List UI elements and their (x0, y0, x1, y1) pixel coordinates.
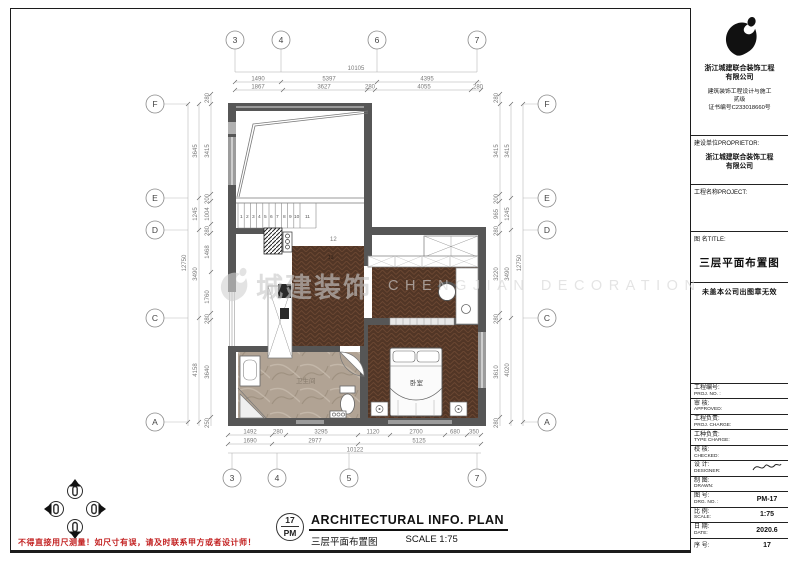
row-drg-no: 图 号:DRG. NO. : PM-17 (691, 492, 788, 507)
svg-text:1490: 1490 (251, 77, 265, 83)
drawing-title-footer: 17 PM ARCHITECTURAL INFO. PLAN 三层平面布置图 S… (276, 513, 508, 548)
seal-note: 未盖本公司出图章无效 (691, 287, 788, 297)
proprietor-section: 建设单位PROPRIETOR: 浙江城建联合装饰工程 有限公司 (691, 136, 788, 185)
svg-text:4: 4 (279, 35, 284, 45)
interior-window-band (390, 318, 454, 325)
svg-text:1120: 1120 (367, 430, 381, 436)
footer-title-en: ARCHITECTURAL INFO. PLAN (309, 513, 508, 531)
nightstand-left (371, 402, 388, 416)
cert-line2: 贰级 (708, 96, 772, 104)
row-date: 日 期:DATE: 2020.6 (691, 523, 788, 538)
svg-text:12750: 12750 (182, 254, 188, 271)
stair-number: 10 (294, 214, 300, 220)
seal-section: 未盖本公司出图章无效 (691, 283, 788, 384)
svg-text:4020: 4020 (505, 363, 511, 377)
svg-text:A: A (544, 417, 550, 427)
svg-text:3645: 3645 (193, 144, 199, 158)
wall-unit (280, 308, 289, 319)
top-dimensions: 10105 1490 5397 4395 1867 3627 280 4055 … (251, 66, 483, 91)
svg-text:C: C (152, 313, 158, 323)
svg-text:12750: 12750 (517, 254, 523, 271)
row-scale: 比 例:SCALE: 1:75 (691, 508, 788, 523)
cert-line3: 证书编号C233018660号 (708, 104, 772, 112)
svg-text:7: 7 (475, 35, 480, 45)
stair-number: 4 (258, 214, 261, 220)
shelf-band (368, 256, 478, 267)
svg-text:965: 965 (494, 208, 500, 219)
company-logo-section: 浙江城建联合装饰工程 有限公司 建筑装饰工程设计与施工 贰级 证书编号C2330… (691, 8, 788, 136)
svg-text:C: C (544, 313, 550, 323)
proprietor-value-line2: 有限公司 (691, 162, 788, 171)
office-chair (438, 282, 456, 300)
svg-text:4: 4 (275, 473, 280, 483)
svg-text:200: 200 (205, 193, 211, 204)
svg-text:1690: 1690 (243, 439, 257, 445)
company-logo-icon (720, 16, 760, 60)
stair-number: 1 (240, 214, 243, 220)
row-designer: 设 计:DESIGNER: (691, 461, 788, 476)
svg-text:280: 280 (205, 92, 211, 103)
svg-text:3415: 3415 (505, 144, 511, 158)
company-name-line1: 浙江城建联合装饰工程 (705, 64, 775, 73)
svg-text:1468: 1468 (205, 245, 211, 259)
landing-label: 12 (330, 237, 337, 243)
drawing-title-value: 三层平面布置图 (691, 255, 788, 270)
svg-text:3: 3 (233, 35, 238, 45)
measurement-warning-note: 不得直接用尺测量！如尺寸有误，请及时联系甲方或者设计师！ (18, 537, 256, 548)
desk (456, 268, 478, 324)
stair-number: 11 (305, 214, 310, 220)
right-dimensions: 280 3415 200 965 280 3220 280 3610 280 3… (494, 92, 523, 428)
drawing-sheet: 1 2 3 4 5 6 7 8 9 10 11 12 13 (0, 0, 800, 566)
svg-text:1004: 1004 (205, 207, 211, 221)
svg-text:A: A (152, 417, 158, 427)
svg-text:280: 280 (273, 430, 284, 436)
title-label: 图 名TITLE: (691, 232, 788, 243)
stair-number: 9 (289, 214, 292, 220)
floor-label: 13 (328, 255, 334, 261)
svg-text:3640: 3640 (205, 365, 211, 379)
sheet-number-bottom: PM (284, 527, 297, 539)
svg-text:10122: 10122 (347, 448, 364, 454)
stair-number: 2 (246, 214, 249, 220)
svg-text:5: 5 (347, 473, 352, 483)
title-block-rows: 工程编号:PROJ. NO. : 审 核:APPROVED: 工程负责:PROJ… (691, 384, 788, 553)
stool (462, 305, 471, 314)
svg-text:250: 250 (205, 417, 211, 428)
row-serial: 序 号: 17 (691, 539, 788, 553)
svg-text:280: 280 (494, 417, 500, 428)
sloped-ceiling-lines (236, 111, 368, 203)
left-dimensions: 12750 3645 1245 3490 4158 280 3415 200 1… (182, 92, 211, 428)
svg-text:F: F (544, 99, 549, 109)
svg-text:3295: 3295 (314, 430, 328, 436)
sheet-number-top: 17 (281, 514, 299, 527)
proprietor-label: 建设单位PROPRIETOR: (691, 136, 788, 147)
row-proj-charge: 工程负责:PROJ. CHARGE: (691, 415, 788, 430)
cert-line1: 建筑装饰工程设计与施工 (708, 88, 772, 96)
duct-shaft (264, 228, 282, 254)
title-block: 浙江城建联合装饰工程 有限公司 建筑装饰工程设计与施工 贰级 证书编号C2330… (690, 8, 788, 553)
bottom-dimensions: 1492 280 3295 1120 2700 680 350 1690 297… (243, 430, 479, 454)
svg-text:3490: 3490 (193, 267, 199, 281)
svg-text:280: 280 (494, 313, 500, 324)
svg-text:1760: 1760 (205, 290, 211, 304)
svg-text:4395: 4395 (420, 77, 434, 83)
footer-title-cn: 三层平面布置图 (311, 534, 378, 548)
svg-text:2700: 2700 (409, 430, 423, 436)
svg-text:E: E (152, 193, 158, 203)
north-arrow-ornament (44, 479, 106, 539)
project-label: 工程名称PROJECT: (691, 185, 788, 196)
svg-text:E: E (544, 193, 550, 203)
svg-text:1245: 1245 (193, 207, 199, 221)
svg-text:280: 280 (494, 92, 500, 103)
svg-text:3415: 3415 (205, 144, 211, 158)
proprietor-value-line1: 浙江城建联合装饰工程 (691, 153, 788, 162)
svg-text:280: 280 (494, 225, 500, 236)
row-checked: 校 核:CHECKED: (691, 446, 788, 461)
toilet (340, 386, 355, 414)
svg-text:280: 280 (205, 225, 211, 236)
company-name-line2: 有限公司 (705, 73, 775, 82)
floor-plan-canvas: 1 2 3 4 5 6 7 8 9 10 11 12 13 (0, 0, 690, 566)
meter-box (283, 232, 292, 252)
svg-text:280: 280 (365, 85, 376, 91)
staircase: 1 2 3 4 5 6 7 8 9 10 11 (238, 203, 316, 228)
svg-text:3610: 3610 (494, 365, 500, 379)
svg-text:D: D (544, 225, 550, 235)
wall-unit (278, 284, 291, 298)
svg-text:1867: 1867 (251, 85, 265, 91)
svg-text:4158: 4158 (193, 363, 199, 377)
stair-number: 3 (252, 214, 255, 220)
bedroom-label: 卧室 (410, 378, 424, 387)
svg-text:7: 7 (475, 473, 480, 483)
svg-text:200: 200 (494, 193, 500, 204)
svg-text:3220: 3220 (494, 267, 500, 281)
row-approved: 审 核:APPROVED: (691, 399, 788, 414)
svg-text:5125: 5125 (412, 439, 426, 445)
svg-text:350: 350 (469, 430, 480, 436)
svg-text:280: 280 (205, 313, 211, 324)
svg-text:2977: 2977 (308, 439, 322, 445)
closet-top (424, 236, 478, 257)
row-proj-no: 工程编号:PROJ. NO. : (691, 384, 788, 399)
svg-text:D: D (152, 225, 158, 235)
svg-text:680: 680 (450, 430, 461, 436)
svg-text:3: 3 (230, 473, 235, 483)
stair-number: 6 (270, 214, 273, 220)
svg-text:3490: 3490 (505, 267, 511, 281)
drawing-title-section: 图 名TITLE: 三层平面布置图 (691, 232, 788, 283)
bathroom-label: 卫生间 (296, 376, 316, 385)
floor-drain (330, 411, 346, 418)
stair-number: 7 (276, 214, 279, 220)
svg-text:10105: 10105 (348, 66, 365, 72)
footer-scale: SCALE 1:75 (406, 534, 458, 548)
svg-text:3415: 3415 (494, 144, 500, 158)
stair-number: 8 (283, 214, 286, 220)
svg-text:4055: 4055 (417, 85, 431, 91)
designer-signature (751, 461, 783, 473)
project-section: 工程名称PROJECT: (691, 185, 788, 232)
living-wood-floor (292, 246, 364, 346)
sheet-number-circle: 17 PM (276, 513, 304, 541)
svg-text:1492: 1492 (243, 430, 257, 436)
stair-number: 5 (264, 214, 267, 220)
nightstand-right (450, 402, 467, 416)
row-drawn: 制 图:DRAWN: (691, 477, 788, 492)
svg-text:1245: 1245 (505, 207, 511, 221)
bathroom-sink (240, 356, 260, 386)
svg-text:5397: 5397 (322, 77, 336, 83)
svg-text:6: 6 (375, 35, 380, 45)
svg-text:F: F (152, 99, 157, 109)
svg-text:3627: 3627 (317, 85, 331, 91)
row-type-charge: 工种负责:TYPE CHARGE: (691, 430, 788, 445)
svg-text:280: 280 (473, 85, 484, 91)
